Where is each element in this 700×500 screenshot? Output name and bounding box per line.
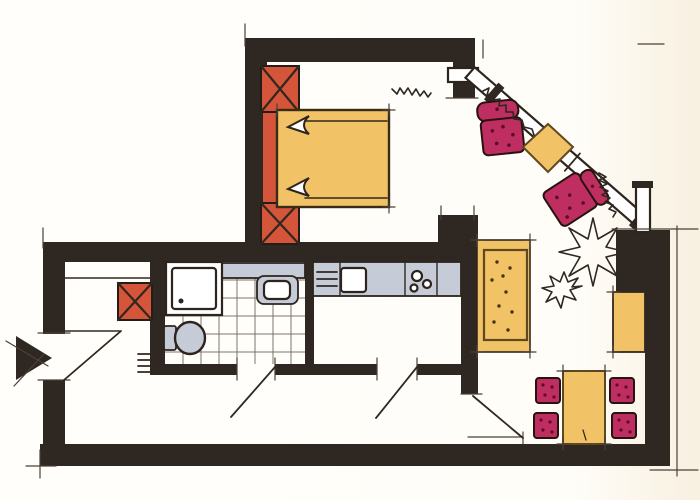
washbasin: Washbasin on counter bbox=[257, 276, 298, 304]
entrance-door-leaf bbox=[64, 331, 121, 380]
kitchen: Kitchen counter Drainer / grill lines Ki… bbox=[313, 262, 461, 296]
wall-south-1 bbox=[165, 364, 237, 375]
wall-left-lower bbox=[43, 380, 65, 450]
sofa: Sofa / daybed bbox=[477, 240, 530, 352]
dining-chair bbox=[612, 413, 636, 438]
wall-bottom bbox=[40, 444, 670, 466]
door-swings: Bathroom door swing Kitchen door swing L… bbox=[231, 358, 523, 444]
shower: Shower tray bbox=[166, 262, 222, 315]
bedroom: Built-in wardrobe with X end cabinets Do… bbox=[261, 66, 389, 244]
toilet: Toilet bbox=[164, 322, 205, 354]
plant-scribble-small bbox=[542, 272, 582, 308]
wall-right-block bbox=[616, 230, 645, 294]
armchair-1: Armchair 1 bbox=[476, 99, 524, 156]
wall-south-3 bbox=[417, 364, 461, 375]
dining-set: Dining table Dining chair bbox=[534, 371, 636, 444]
dining-chair: Dining chair bbox=[536, 378, 560, 403]
dining-chair bbox=[534, 413, 558, 438]
entrance: Entrance door swing Entrance direction a… bbox=[6, 331, 121, 386]
curtain-squiggle-bedroom: Curtain squiggles bbox=[392, 88, 431, 97]
wall-living-left bbox=[461, 242, 478, 394]
floor-plan: Apartment floor plan Diagonal corner win… bbox=[0, 0, 700, 500]
radiator-ticks: Radiator ticks bbox=[138, 354, 152, 372]
shower-drain-dot bbox=[179, 299, 184, 304]
kitchen-sink: Kitchen sink bbox=[341, 268, 366, 292]
bed: Double bed with two pillows bbox=[277, 110, 389, 207]
wall-south-2 bbox=[275, 364, 377, 375]
wall-right-main bbox=[645, 230, 670, 444]
hallway: Hall wardrobe front lines Hall closet (X… bbox=[6, 278, 152, 386]
wall-left-upper bbox=[43, 242, 65, 334]
kitchen-door: Kitchen door swing bbox=[376, 358, 417, 418]
desk: Wall desk bbox=[613, 292, 645, 352]
wall-bedroom-top bbox=[245, 38, 475, 62]
window-cap-3 bbox=[632, 181, 653, 188]
bathroom-door: Bathroom door swing bbox=[231, 358, 275, 417]
window-stub-v bbox=[636, 186, 650, 232]
hall-closet: Hall closet (X cabinet) bbox=[118, 283, 152, 320]
dining-chair bbox=[610, 378, 634, 403]
living-door: Living room door swing bbox=[461, 394, 523, 444]
